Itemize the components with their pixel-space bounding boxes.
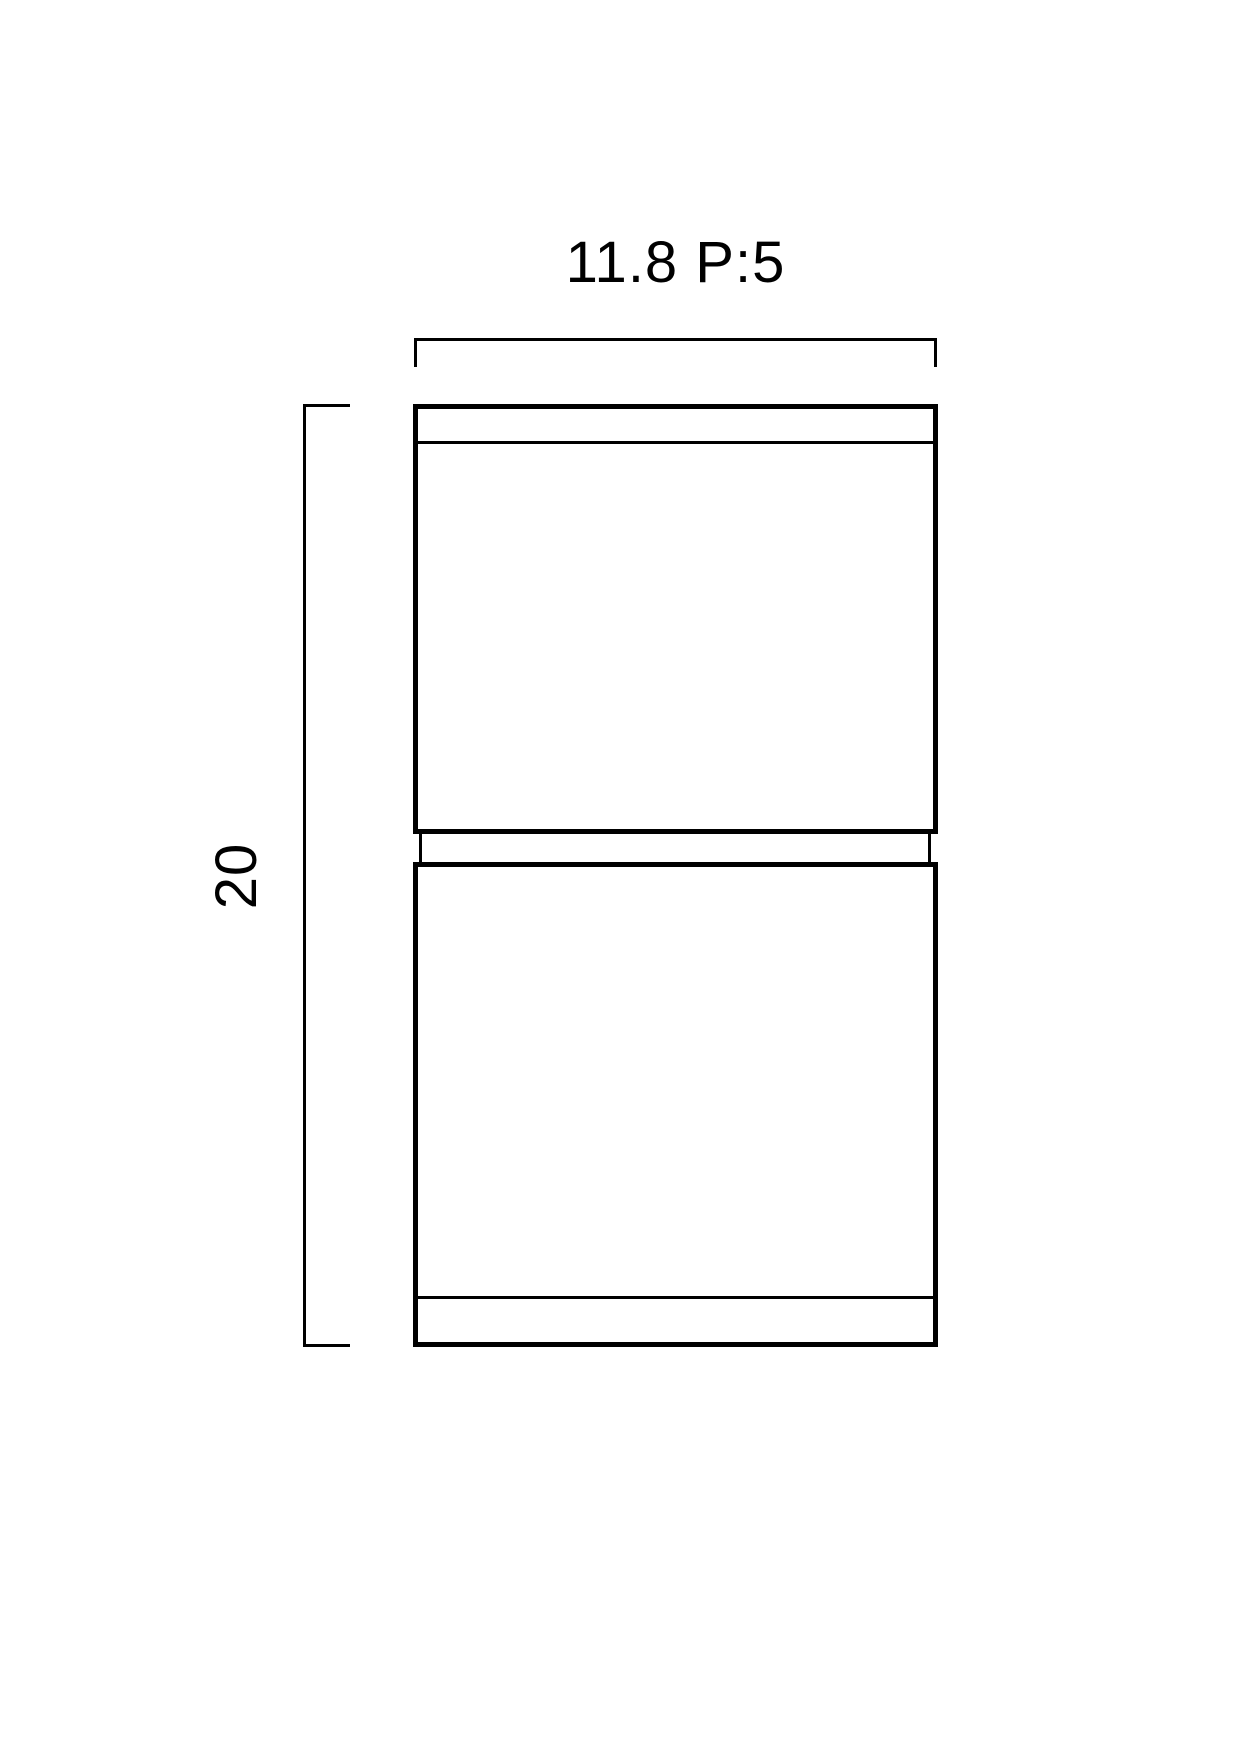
dimension-drawing-canvas: 11.8 P:5 20 [0, 0, 1240, 1754]
fixture-connector-recess-outline [419, 834, 931, 862]
width-dimension-label: 11.8 P:5 [413, 234, 938, 292]
height-dimension-bracket [303, 404, 350, 1347]
fixture-upper-body-outline [413, 404, 938, 834]
fixture-bottom-cap-line [418, 1296, 933, 1299]
height-dimension-label: 20 [208, 843, 266, 910]
width-dimension-bracket [414, 338, 937, 367]
fixture-lower-body-outline [413, 862, 938, 1347]
fixture-top-cap-line [418, 441, 933, 444]
